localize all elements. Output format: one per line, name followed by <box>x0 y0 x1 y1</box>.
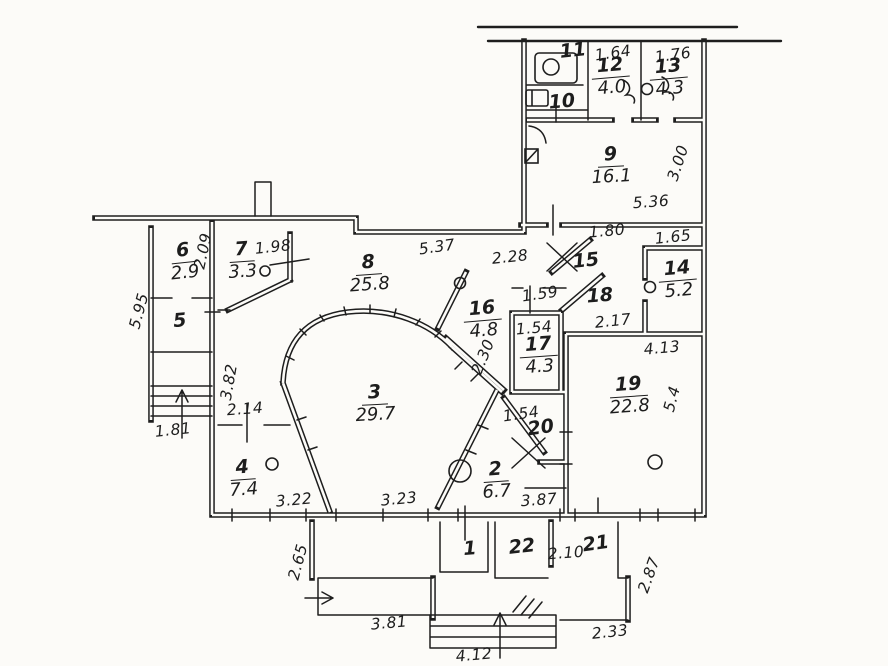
dimension-label: 2.65 <box>285 542 312 582</box>
room-area: 3.3 <box>228 261 258 283</box>
room-label-19: 1922.8 <box>608 374 651 419</box>
room-area: 25.8 <box>349 274 390 297</box>
dimension-label: 2.10 <box>547 543 585 564</box>
room-number: 3 <box>361 382 387 405</box>
dimension-label: 5.4 <box>660 384 684 414</box>
room-number: 2 <box>482 459 509 483</box>
dimension-label: 3.87 <box>520 490 558 511</box>
room-area: 7.4 <box>229 479 259 501</box>
room-label-18: 18 <box>580 285 620 309</box>
dimension-label: 3.22 <box>275 489 313 510</box>
room-label-22: 22 <box>502 536 542 561</box>
room-label-1: 1 <box>457 539 484 562</box>
dimension-label: 3.23 <box>380 488 418 509</box>
room-number: 9 <box>597 144 623 167</box>
room-area: 22.8 <box>609 396 650 419</box>
dimension-label: 4.13 <box>643 337 681 358</box>
room-number: 7 <box>228 239 255 263</box>
dimension-label: 1.98 <box>254 236 292 258</box>
dimension-label: 2.87 <box>634 555 663 595</box>
plan-labels: 126.7329.747.4562.973.3825.8916.11011124… <box>0 0 888 666</box>
room-number: 18 <box>580 285 620 309</box>
dimension-label: 2.14 <box>226 399 264 420</box>
dimension-label: 2.28 <box>491 246 529 268</box>
room-label-9: 916.1 <box>590 144 632 188</box>
dimension-label: 4.12 <box>455 644 493 665</box>
room-number: 5 <box>167 310 194 333</box>
floor-plan-page: 126.7329.747.4562.973.3825.8916.11011124… <box>0 0 888 666</box>
dimension-label: 2.33 <box>591 621 629 643</box>
room-label-2: 26.7 <box>480 459 511 503</box>
room-number: 15 <box>566 250 606 275</box>
room-number: 10 <box>542 91 582 115</box>
dimension-label: 3.81 <box>370 612 408 633</box>
room-label-4: 47.4 <box>227 457 258 501</box>
room-label-10: 10 <box>542 91 582 115</box>
dimension-label: 2.30 <box>468 337 498 378</box>
room-label-7: 73.3 <box>226 239 257 283</box>
room-label-14: 145.2 <box>657 257 699 302</box>
room-label-3: 329.7 <box>354 382 396 426</box>
room-label-16: 164.8 <box>462 297 504 342</box>
dimension-label: 2.09 <box>190 231 215 270</box>
room-area: 6.7 <box>482 481 512 503</box>
room-label-5: 5 <box>167 310 194 333</box>
room-area: 4.3 <box>655 78 685 100</box>
room-number: 1 <box>457 539 484 562</box>
dimension-label: 5.37 <box>418 236 457 259</box>
room-label-8: 825.8 <box>348 252 391 297</box>
room-label-15: 15 <box>566 250 606 275</box>
room-label-11: 11 <box>553 40 593 65</box>
room-area: 16.1 <box>591 166 632 188</box>
room-number: 8 <box>355 252 382 276</box>
room-number: 11 <box>553 40 593 65</box>
room-number: 4 <box>229 457 256 481</box>
dimension-label: 1.65 <box>654 226 692 248</box>
room-area: 29.7 <box>355 404 396 426</box>
room-label-17: 174.3 <box>518 334 559 378</box>
dimension-label: 1.80 <box>588 220 626 241</box>
dimension-label: 1.81 <box>154 419 192 441</box>
room-area: 5.2 <box>664 280 694 302</box>
dimension-label: 5.95 <box>126 291 153 331</box>
dimension-label: 3.00 <box>664 143 692 183</box>
dimension-label: 3.82 <box>217 362 241 401</box>
dimension-label: 1.59 <box>521 283 560 306</box>
room-area: 4.0 <box>597 77 627 99</box>
dimension-label: 5.36 <box>632 192 670 213</box>
room-number: 22 <box>502 536 542 561</box>
dimension-label: 2.17 <box>594 310 632 332</box>
room-area: 4.3 <box>525 356 555 378</box>
dimension-label: 1.54 <box>515 317 553 338</box>
